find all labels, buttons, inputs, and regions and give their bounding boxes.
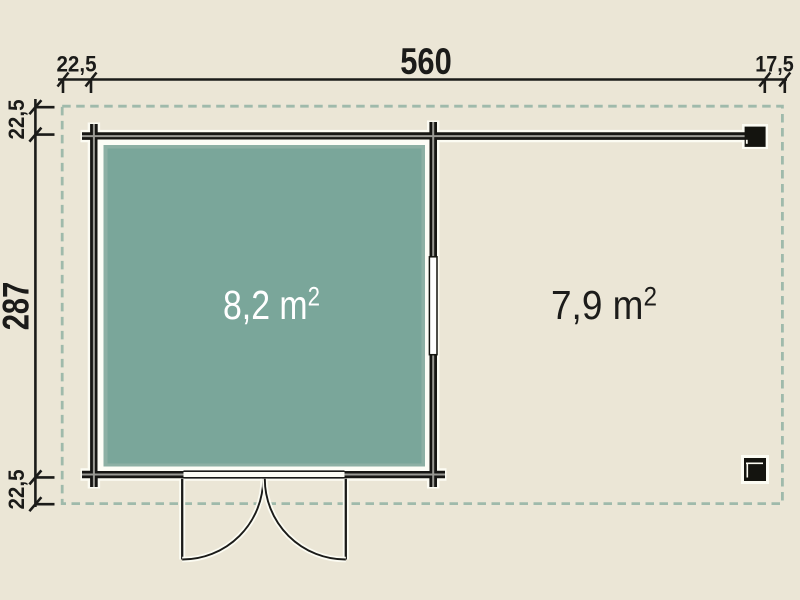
svg-text:7,9 m2: 7,9 m2 <box>551 282 657 329</box>
svg-text:287: 287 <box>0 282 37 331</box>
svg-text:17,5: 17,5 <box>755 52 794 77</box>
svg-text:22,5: 22,5 <box>4 470 29 510</box>
svg-text:8,2 m2: 8,2 m2 <box>223 282 320 329</box>
svg-text:560: 560 <box>400 41 452 82</box>
svg-text:22,5: 22,5 <box>4 100 29 140</box>
svg-text:22,5: 22,5 <box>57 52 97 77</box>
